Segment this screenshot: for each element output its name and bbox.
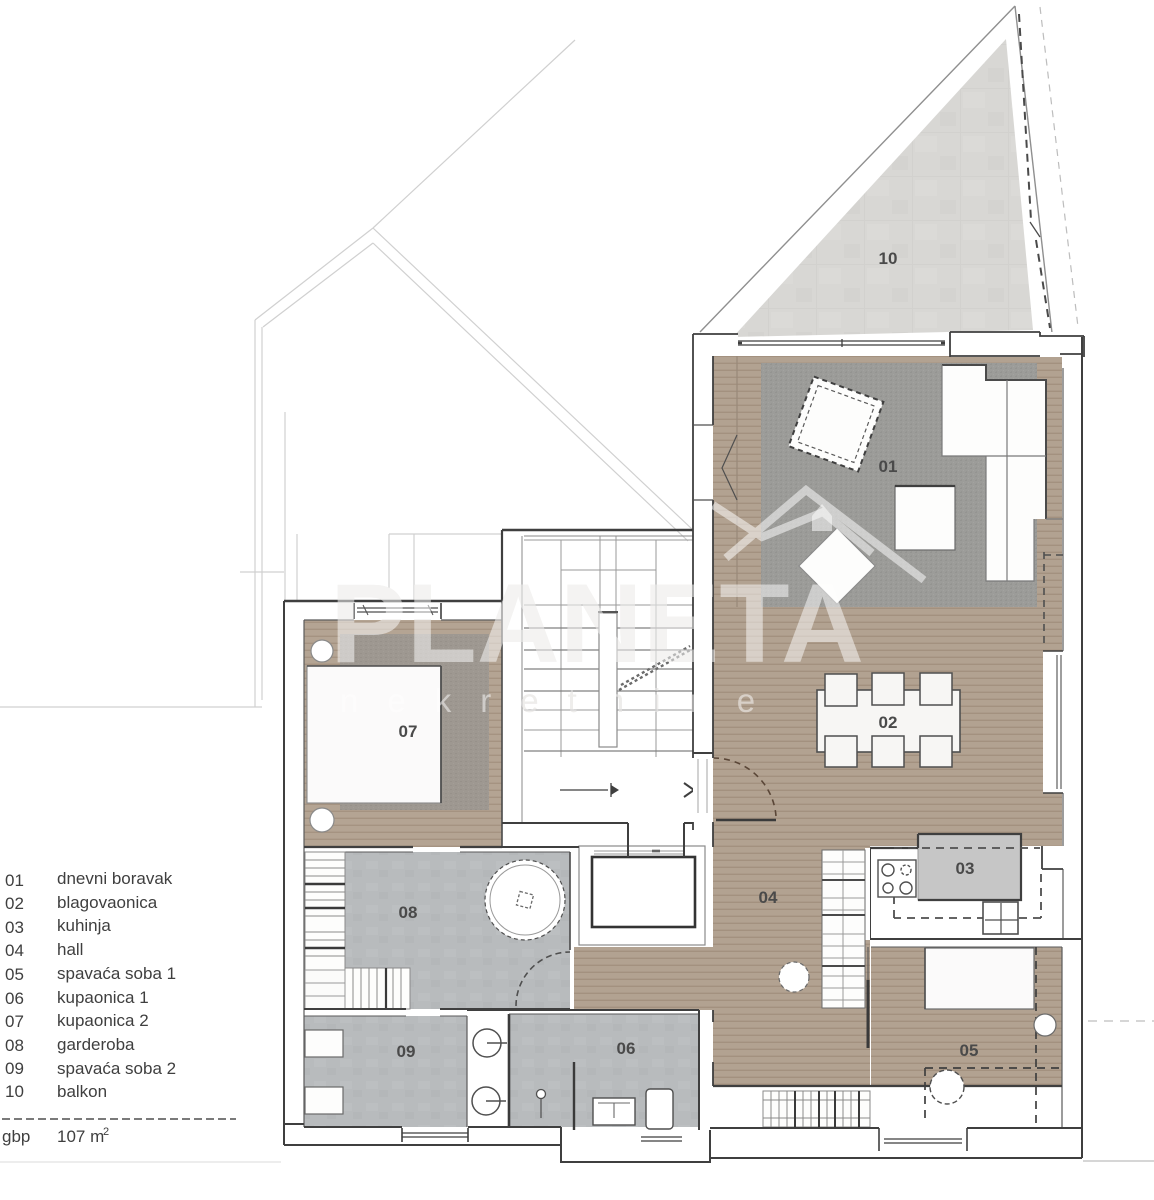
svg-text:02: 02 — [5, 894, 24, 913]
svg-text:kuhinja: kuhinja — [57, 916, 111, 935]
svg-text:03: 03 — [5, 918, 24, 937]
svg-text:08: 08 — [5, 1036, 24, 1055]
svg-text:08: 08 — [399, 903, 418, 922]
svg-text:nekretnine: nekretnine — [340, 682, 784, 719]
svg-text:garderoba: garderoba — [57, 1035, 135, 1054]
svg-text:05: 05 — [960, 1041, 979, 1060]
svg-text:03: 03 — [956, 859, 975, 878]
svg-text:hall: hall — [57, 940, 83, 959]
svg-text:gbp: gbp — [2, 1127, 30, 1146]
svg-text:04: 04 — [5, 941, 24, 960]
svg-text:2: 2 — [103, 1126, 109, 1138]
svg-text:107 m: 107 m — [57, 1127, 104, 1146]
svg-text:06: 06 — [5, 989, 24, 1008]
svg-text:01: 01 — [5, 871, 24, 890]
svg-text:PLANETA: PLANETA — [330, 561, 864, 686]
svg-text:06: 06 — [617, 1039, 636, 1058]
svg-text:02: 02 — [879, 713, 898, 732]
svg-text:spavaća soba 2: spavaća soba 2 — [57, 1059, 176, 1078]
svg-text:dnevni boravak: dnevni boravak — [57, 869, 173, 888]
svg-text:blagovaonica: blagovaonica — [57, 893, 158, 912]
svg-text:10: 10 — [879, 249, 898, 268]
svg-text:balkon: balkon — [57, 1082, 107, 1101]
svg-text:04: 04 — [759, 888, 778, 907]
svg-text:10: 10 — [5, 1082, 24, 1101]
svg-text:09: 09 — [397, 1042, 416, 1061]
svg-text:09: 09 — [5, 1059, 24, 1078]
svg-text:07: 07 — [399, 722, 418, 741]
svg-text:kupaonica 1: kupaonica 1 — [57, 988, 149, 1007]
svg-text:05: 05 — [5, 965, 24, 984]
svg-text:spavaća soba 1: spavaća soba 1 — [57, 964, 176, 983]
svg-text:01: 01 — [879, 457, 898, 476]
svg-text:kupaonica 2: kupaonica 2 — [57, 1011, 149, 1030]
svg-text:07: 07 — [5, 1012, 24, 1031]
